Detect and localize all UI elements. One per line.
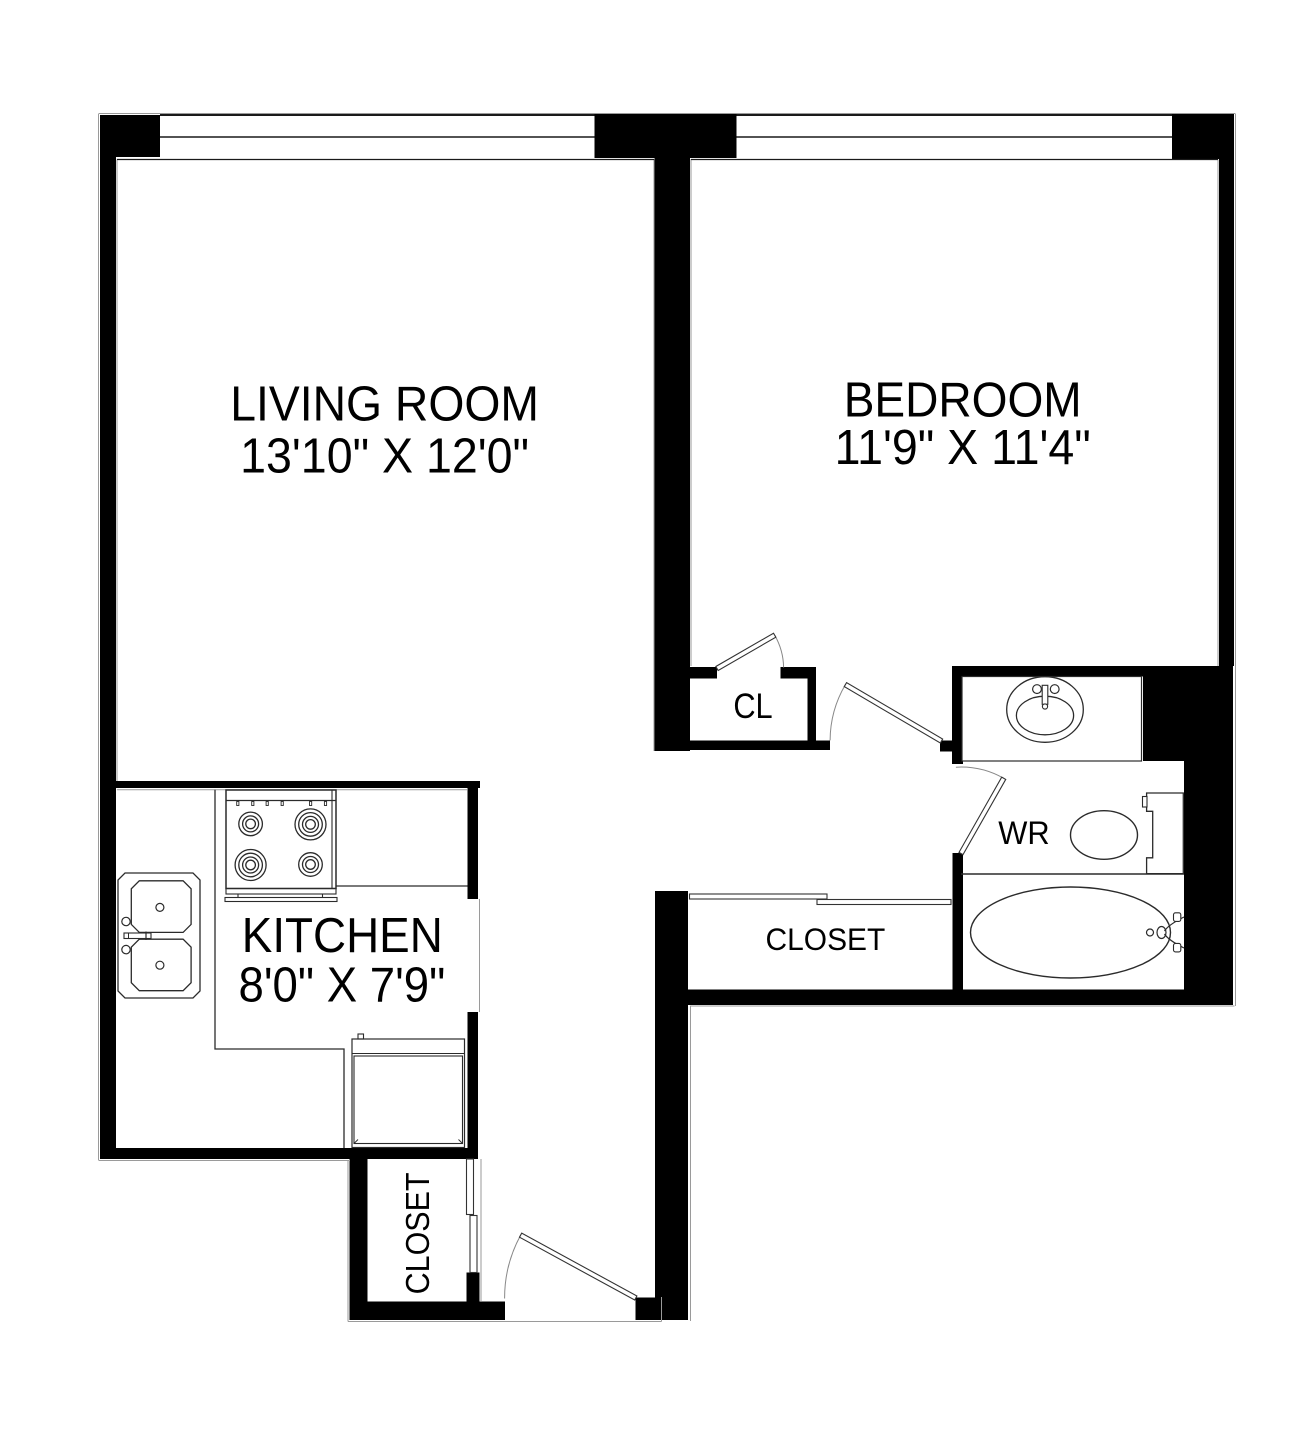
svg-text:13'10" X 12'0": 13'10" X 12'0" <box>240 429 529 483</box>
svg-text:CLOSET: CLOSET <box>766 921 886 957</box>
svg-text:11'9" X 11'4": 11'9" X 11'4" <box>835 421 1091 475</box>
svg-text:KITCHEN: KITCHEN <box>242 909 443 964</box>
svg-text:8'0" X 7'9": 8'0" X 7'9" <box>239 958 446 1013</box>
svg-text:CLOSET: CLOSET <box>399 1172 437 1294</box>
svg-text:BEDROOM: BEDROOM <box>844 373 1082 428</box>
svg-text:CL: CL <box>733 686 772 725</box>
svg-text:WR: WR <box>998 814 1049 851</box>
svg-text:LIVING ROOM: LIVING ROOM <box>230 377 539 431</box>
